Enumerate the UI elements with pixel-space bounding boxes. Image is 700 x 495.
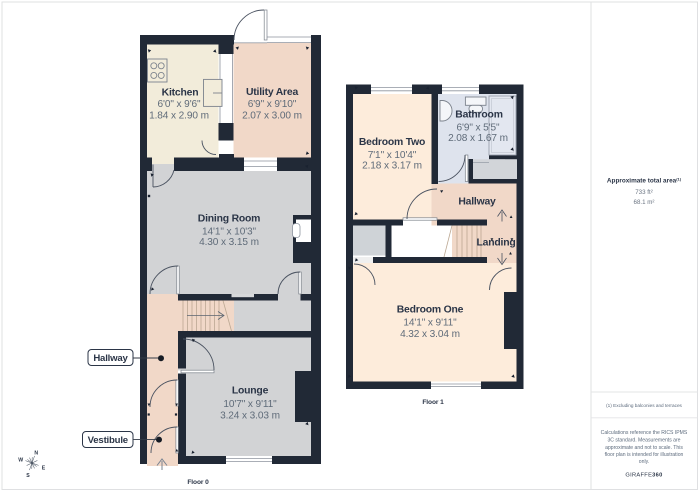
svg-text:6'9" x 5'5": 6'9" x 5'5" bbox=[456, 122, 500, 133]
svg-text:2.08 x 1.67 m: 2.08 x 1.67 m bbox=[448, 133, 508, 144]
svg-text:Dining Room: Dining Room bbox=[198, 214, 260, 225]
svg-text:2.07 x 3.00 m: 2.07 x 3.00 m bbox=[242, 111, 302, 122]
svg-text:14'1" x 10'3": 14'1" x 10'3" bbox=[202, 227, 257, 238]
svg-text:733 ft²: 733 ft² bbox=[635, 189, 653, 196]
svg-text:GIRAFFE360: GIRAFFE360 bbox=[625, 473, 662, 479]
svg-text:Hallway: Hallway bbox=[93, 353, 128, 364]
svg-text:Vestibule: Vestibule bbox=[88, 435, 128, 446]
svg-text:E: E bbox=[42, 466, 46, 472]
svg-text:Bedroom Two: Bedroom Two bbox=[359, 137, 425, 148]
svg-text:6'9" x 9'10": 6'9" x 9'10" bbox=[248, 99, 297, 110]
svg-text:S: S bbox=[26, 473, 30, 479]
svg-text:3C standard. Measurements are: 3C standard. Measurements are bbox=[607, 438, 680, 444]
svg-text:Kitchen: Kitchen bbox=[162, 87, 199, 98]
svg-text:Floor 1: Floor 1 bbox=[422, 399, 444, 406]
svg-text:Utility Area: Utility Area bbox=[246, 87, 298, 98]
svg-text:14'1" x 9'11": 14'1" x 9'11" bbox=[403, 318, 457, 329]
svg-text:Calculations reference the RIC: Calculations reference the RICS IPMS bbox=[601, 430, 688, 436]
svg-text:Floor 0: Floor 0 bbox=[187, 479, 209, 486]
svg-text:Lounge: Lounge bbox=[232, 386, 269, 397]
svg-text:Bathroom: Bathroom bbox=[455, 109, 502, 120]
svg-text:68.1 m²: 68.1 m² bbox=[634, 199, 655, 206]
svg-text:Hallway: Hallway bbox=[458, 197, 496, 208]
svg-text:approximate and not to scale.: approximate and not to scale. This bbox=[605, 445, 683, 451]
svg-text:10'7" x 9'11": 10'7" x 9'11" bbox=[223, 399, 277, 410]
svg-text:W: W bbox=[18, 457, 23, 463]
svg-text:(1) Excluding balconies and te: (1) Excluding balconies and terraces bbox=[606, 403, 682, 408]
svg-text:3.24 x 3.03 m: 3.24 x 3.03 m bbox=[220, 410, 280, 421]
svg-text:1.84 x 2.90 m: 1.84 x 2.90 m bbox=[149, 111, 209, 122]
svg-text:only.: only. bbox=[639, 459, 649, 465]
svg-text:4.30 x 3.15 m: 4.30 x 3.15 m bbox=[199, 237, 259, 248]
svg-text:6'0" x 9'6": 6'0" x 9'6" bbox=[157, 99, 201, 110]
svg-text:N: N bbox=[34, 451, 38, 457]
svg-text:Approximate total area(1): Approximate total area(1) bbox=[607, 176, 682, 184]
svg-text:Bedroom One: Bedroom One bbox=[397, 305, 464, 316]
svg-text:floor plan is intended for ill: floor plan is intended for illustration bbox=[605, 452, 684, 458]
svg-text:4.32 x 3.04 m: 4.32 x 3.04 m bbox=[400, 329, 460, 340]
svg-text:Landing: Landing bbox=[476, 237, 515, 248]
svg-text:2.18 x 3.17 m: 2.18 x 3.17 m bbox=[362, 160, 422, 171]
